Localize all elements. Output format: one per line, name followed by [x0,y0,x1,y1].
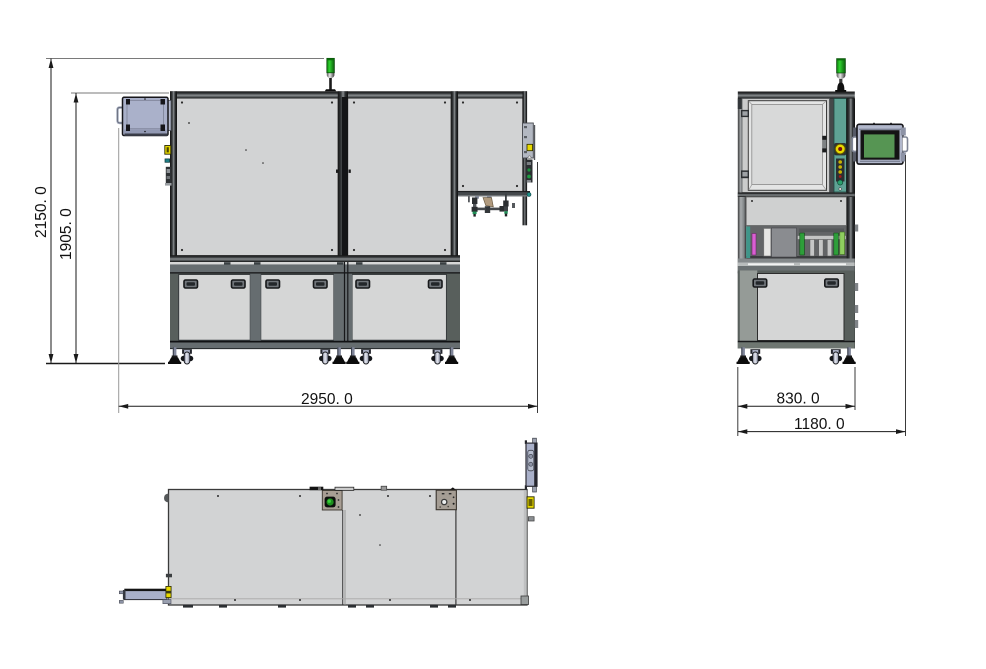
svg-text:1180. 0: 1180. 0 [794,416,845,433]
svg-text:830. 0: 830. 0 [777,391,820,408]
svg-text:2150. 0: 2150. 0 [33,186,50,238]
svg-text:1905. 0: 1905. 0 [58,208,75,260]
svg-text:2950. 0: 2950. 0 [301,391,353,408]
